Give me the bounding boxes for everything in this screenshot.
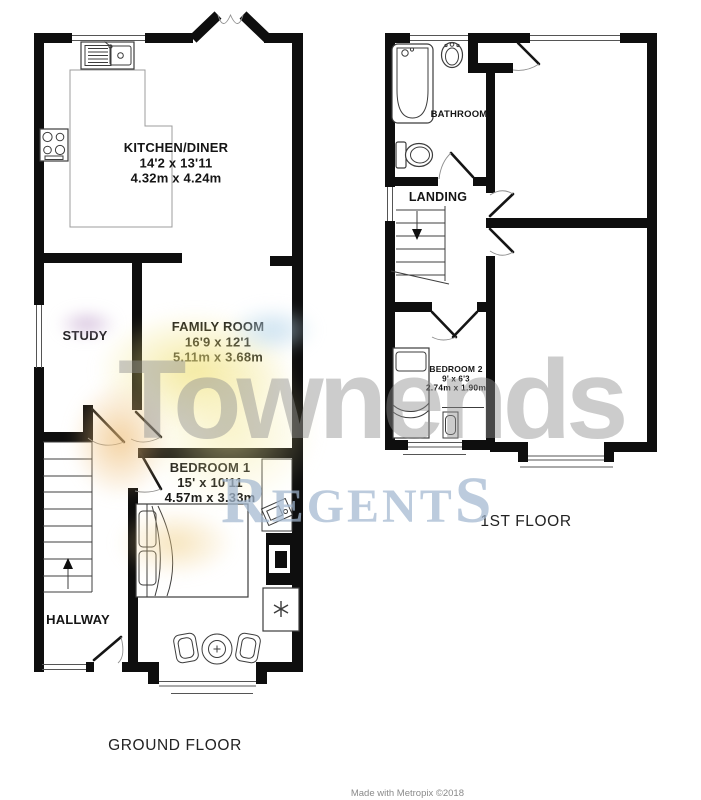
- first-floor-caption: 1ST FLOOR: [480, 513, 571, 530]
- basin: [442, 43, 463, 68]
- first-floor-plan: BATHROOM LANDING BEDROOM 2 9' x 6'3 2.74…: [385, 33, 657, 530]
- ground-floor-plan: KITCHEN/DINER 14'2 x 13'11 4.32m x 4.24m…: [34, 15, 303, 754]
- bedroom2-metric: 2.74m x 1.90m: [426, 383, 486, 393]
- single-bed: [393, 348, 429, 438]
- fireplace: [266, 533, 302, 585]
- bathroom-window: [410, 36, 468, 41]
- double-bed: [136, 504, 248, 597]
- study-window: [37, 305, 42, 368]
- floorplan-image: KITCHEN/DINER 14'2 x 13'11 4.32m x 4.24m…: [0, 0, 701, 800]
- bedroom2-door-right: [453, 312, 477, 337]
- kitchen-sink: [81, 42, 134, 70]
- stairs-first-floor: [391, 206, 449, 284]
- front-door: [94, 637, 121, 660]
- family-room-imperial: 16'9 x 12'1: [185, 335, 251, 350]
- toilet: [396, 142, 433, 168]
- bathtub: [392, 44, 433, 123]
- bay-window: [159, 682, 256, 694]
- metropix-credit: Made with Metropix ©2018: [351, 788, 464, 799]
- family-room-metric: 5.11m x 3.68m: [173, 350, 263, 365]
- ground-floor-labels: KITCHEN/DINER 14'2 x 13'11 4.32m x 4.24m…: [46, 140, 264, 754]
- bathroom-door: [451, 153, 473, 177]
- desk: [261, 459, 292, 531]
- bedroom2-label: BEDROOM 2: [429, 364, 482, 374]
- family-room-door: [136, 412, 161, 437]
- kitchen-fixtures: [40, 42, 172, 228]
- kitchen-diner-imperial: 14'2 x 13'11: [140, 156, 213, 171]
- landing-label: LANDING: [409, 190, 467, 204]
- hallway-window: [42, 665, 86, 670]
- freezer: [263, 588, 299, 631]
- kitchen-diner-label: KITCHEN/DINER: [124, 140, 229, 155]
- hallway-label: HALLWAY: [46, 612, 110, 627]
- landing-front-door: [490, 194, 513, 216]
- rear-bay-window: [520, 456, 613, 467]
- bedroom1-metric: 4.57m x 3.33m: [165, 490, 256, 505]
- bedroom2-furniture: [393, 348, 484, 438]
- floorplan-drawing: KITCHEN/DINER 14'2 x 13'11 4.32m x 4.24m…: [0, 0, 701, 800]
- bedroom-top-window: [530, 36, 620, 41]
- bathroom-fixtures: [392, 43, 463, 169]
- bedroom2-door-left: [432, 312, 456, 337]
- study-door: [92, 409, 124, 442]
- bedroom1-imperial: 15' x 10'11: [177, 475, 243, 490]
- ground-floor-caption: GROUND FLOOR: [108, 737, 242, 754]
- landing-window: [388, 187, 393, 221]
- family-room-label: FAMILY ROOM: [172, 319, 265, 334]
- bedroom2-bay-window: [403, 443, 466, 455]
- table-and-chairs: [173, 632, 262, 664]
- kitchen-window: [72, 36, 145, 41]
- radiator: [443, 412, 458, 438]
- front-bedroom-door: [518, 43, 539, 64]
- bedroom1-label: BEDROOM 1: [170, 460, 251, 475]
- bathroom-label: BATHROOM: [431, 109, 488, 120]
- patio-door-opening: [218, 15, 243, 24]
- kitchen-diner-metric: 4.32m x 4.24m: [131, 171, 222, 186]
- stairs-up-arrow: [63, 558, 73, 589]
- stairs-ground-floor: [43, 442, 92, 592]
- study-label: STUDY: [62, 328, 107, 343]
- landing-rear-door: [490, 229, 513, 252]
- hob: [40, 129, 68, 161]
